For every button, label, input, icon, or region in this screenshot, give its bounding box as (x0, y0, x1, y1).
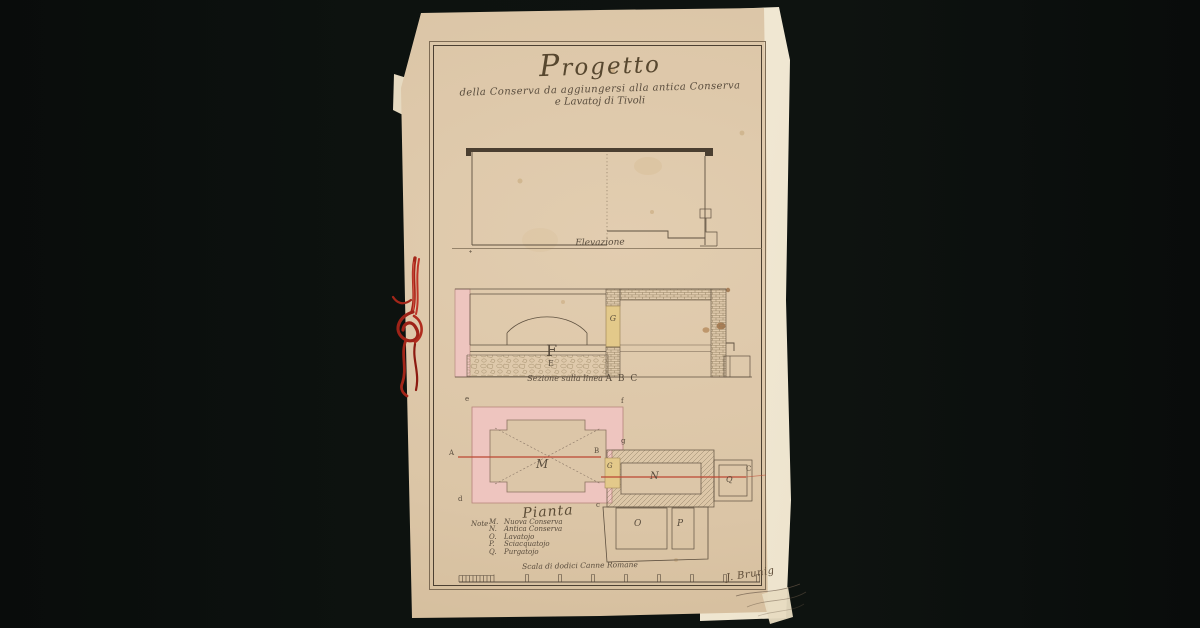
plan-corner-g: g (621, 437, 625, 445)
section-label-E: E (548, 359, 554, 368)
plan-corner-c: c (596, 501, 600, 509)
plan-room-P: P (677, 519, 683, 529)
plan-point-C: C (746, 465, 751, 473)
scale-bar (459, 574, 760, 582)
legend-key: Q. (489, 549, 502, 556)
elevation-caption: Elevazione (543, 237, 657, 249)
plan-corner-f: f (621, 397, 624, 405)
section-drawing (455, 289, 752, 377)
plan-point-A: A (449, 449, 454, 457)
plan-room-Q: Q (726, 475, 733, 484)
scanned-architectural-drawing: Progetto della Conserva da aggiungersi a… (0, 0, 1200, 628)
section-label-G: G (607, 314, 619, 323)
plan-room-N: N (650, 471, 659, 482)
plan-point-B: B (594, 447, 599, 455)
section-caption-script: Sezione sulla linea (527, 374, 603, 383)
section-label-F: F (546, 341, 557, 360)
binding-cord (393, 258, 422, 396)
legend: M. Nuova Conserva N. Antica Conserva O. … (489, 519, 563, 556)
section-caption: Sezione sulla linea A B C (508, 374, 658, 384)
plan-room-O: O (634, 519, 641, 529)
plan-door-G: G (607, 462, 613, 470)
legend-note-label: Note (471, 520, 488, 528)
section-caption-letters: A B C (606, 374, 639, 384)
legend-text: Purgatojo (504, 549, 539, 556)
signature-flourish (736, 584, 806, 616)
plan-room-M: M (536, 457, 548, 471)
drawing-title: Progetto (509, 44, 690, 85)
plan-corner-d: d (458, 495, 462, 503)
plan-corner-e: e (465, 395, 469, 403)
legend-row-Q: Q. Purgatojo (489, 549, 563, 556)
